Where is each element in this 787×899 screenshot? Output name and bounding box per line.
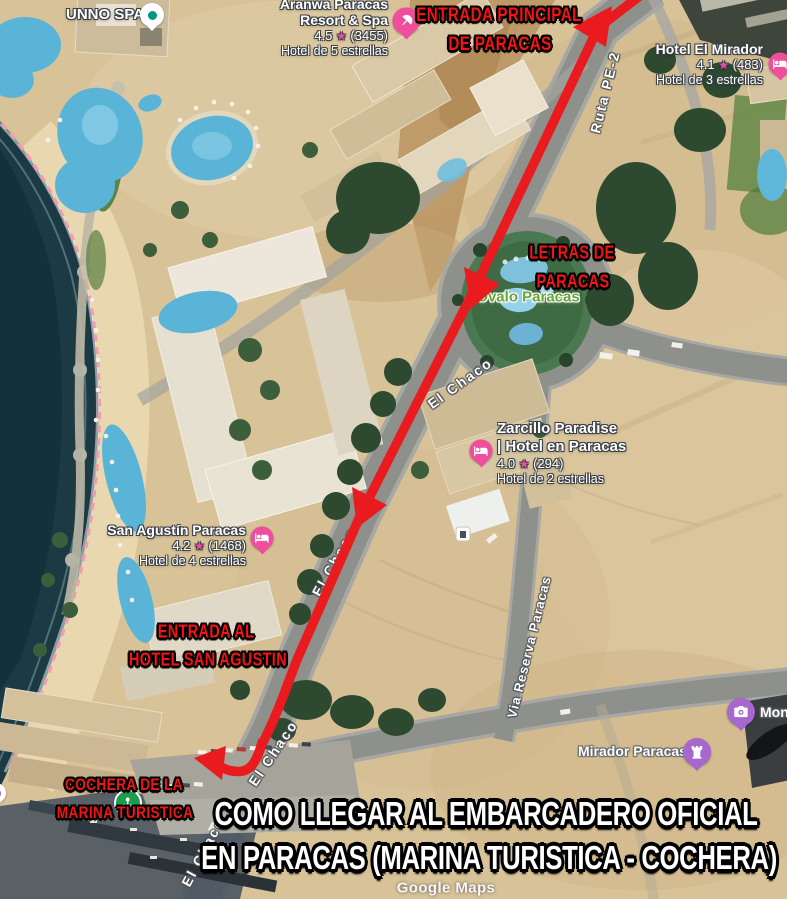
place-name: UNNO SPA [66, 7, 144, 23]
star-icon: ★ [519, 457, 530, 471]
place-category: Hotel de 5 estrellas [252, 44, 388, 59]
review-count: (294) [533, 456, 563, 471]
spa-pin-unno[interactable] [140, 3, 164, 27]
rating-value: 4.0 [497, 456, 515, 471]
place-category: Hotel de 4 estrellas [106, 554, 246, 569]
bed-icon [474, 444, 489, 459]
place-label-mirador-paracas[interactable]: Mirador Paracas [578, 743, 687, 759]
attraction-pin-monumento[interactable] [727, 698, 755, 726]
place-name: San Agustín Paracas [106, 522, 246, 538]
place-label-zarcillo[interactable]: Zarcillo Paradise | Hotel en Paracas 4.0… [497, 420, 626, 487]
star-icon: ★ [718, 58, 729, 72]
place-label-monumento-partial[interactable]: Mon [760, 704, 787, 720]
attraction-pin-mirador-paracas[interactable] [683, 738, 711, 766]
map-screenshot: UNNO SPA Aranwa Paracas Resort & Spa 4.5… [0, 0, 787, 899]
google-maps-watermark[interactable]: Google Maps [397, 880, 496, 897]
place-rating: 4.0 ★ (294) [497, 456, 626, 472]
annotation-cochera-line1: COCHERA DE LA [65, 775, 183, 795]
place-name: Resort & Spa [252, 12, 388, 28]
place-category: Hotel de 3 estrellas [623, 73, 763, 88]
hotel-pin-el-mirador[interactable] [769, 53, 787, 76]
tower-icon [688, 743, 706, 761]
review-count: (3455) [350, 28, 388, 43]
place-name: Hotel El Mirador [623, 41, 763, 57]
spa-icon [148, 11, 157, 20]
place-rating: 4.1 ★ (483) [623, 57, 763, 73]
annotation-entrada-hotel-line1: ENTRADA AL [158, 622, 255, 643]
review-count: (1468) [208, 538, 246, 553]
beach-umbrella-icon [397, 12, 414, 29]
place-label-unno-spa[interactable]: UNNO SPA [66, 7, 144, 23]
place-rating: 4.2 ★ (1468) [106, 538, 246, 554]
bed-icon [773, 57, 787, 72]
rating-value: 4.1 [697, 57, 715, 72]
annotation-letras-line2: PARACAS [537, 272, 610, 293]
annotation-letras-line1: LETRAS DE [529, 243, 614, 264]
bed-icon [255, 531, 270, 546]
place-category: Hotel de 2 estrellas [497, 472, 626, 487]
camera-icon [732, 703, 750, 721]
annotation-entrada-principal-line2: DE PARACAS [448, 34, 551, 56]
place-name: | Hotel en Paracas [497, 438, 626, 456]
place-name: Zarcillo Paradise [497, 420, 626, 438]
place-name: Aranwa Paracas [252, 0, 388, 12]
place-label-aranwa[interactable]: Aranwa Paracas Resort & Spa 4.5 ★ (3455)… [252, 0, 388, 59]
rating-value: 4.5 [314, 28, 332, 43]
banner-title-line2: EN PARACAS (MARINA TURISTICA - COCHERA) [201, 839, 777, 877]
hotel-pin-zarcillo[interactable] [470, 440, 493, 463]
annotation-entrada-principal-line1: ENTRADA PRINCIPAL [416, 5, 582, 27]
poi-icon [0, 789, 1, 798]
review-count: (483) [733, 57, 763, 72]
annotation-entrada-hotel-line2: HOTEL SAN AGUSTIN [129, 650, 287, 671]
star-icon: ★ [194, 539, 205, 553]
star-icon: ★ [336, 29, 347, 43]
place-label-el-mirador[interactable]: Hotel El Mirador 4.1 ★ (483) Hotel de 3 … [623, 41, 763, 88]
place-label-san-agustin[interactable]: San Agustín Paracas 4.2 ★ (1468) Hotel d… [106, 522, 246, 569]
place-rating: 4.5 ★ (3455) [252, 28, 388, 44]
hotel-pin-san-agustin[interactable] [251, 527, 274, 550]
annotation-cochera-line2: MARINA TURISTICA [57, 803, 194, 823]
rating-value: 4.2 [172, 538, 190, 553]
banner-title-line1: COMO LLEGAR AL EMBARCADERO OFICIAL [214, 795, 757, 833]
satellite-map[interactable] [0, 0, 787, 899]
